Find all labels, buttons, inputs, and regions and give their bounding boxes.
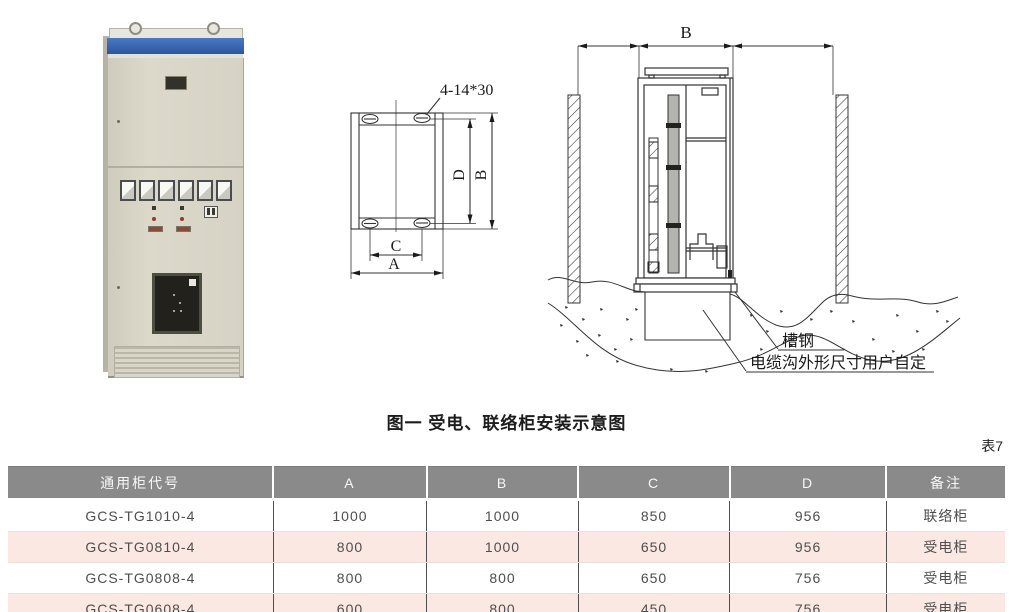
indicator-dot [180, 206, 184, 210]
meter-display-panel [152, 273, 202, 334]
lifting-eyebolt-icon [207, 22, 220, 35]
base-channel [634, 278, 737, 292]
table-row: GCS-TG1010-4 1000 1000 850 956 联络柜 [8, 500, 1005, 532]
panel-dot [180, 310, 182, 312]
channel-steel-label: 槽钢 [782, 332, 814, 350]
table-row: GCS-TG0810-4 800 1000 650 956 受电柜 [8, 532, 1005, 563]
cell-a: 800 [273, 563, 427, 594]
cable-trench [645, 292, 730, 340]
cabinet-body [108, 58, 244, 378]
panel-dot [179, 302, 181, 304]
cell-d: 956 [730, 532, 887, 563]
indicator-lamp [180, 217, 184, 221]
left-wall [568, 95, 580, 303]
dim-label-b-install: B [680, 23, 691, 42]
meter-window [178, 180, 194, 201]
screw-icon [117, 120, 120, 123]
dim-label-b: B [473, 170, 490, 181]
cell-d: 756 [730, 563, 887, 594]
meter-window [139, 180, 155, 201]
cell-b: 800 [427, 563, 579, 594]
selector-switch [204, 206, 218, 218]
panel-dot [173, 294, 175, 296]
cell-code: GCS-TG0608-4 [8, 594, 273, 612]
table-header-row: 通用柜代号 A B C D 备注 [8, 467, 1005, 500]
col-header-a: A [273, 467, 427, 500]
cell-remark: 受电柜 [886, 563, 1005, 594]
meter-window [158, 180, 174, 201]
cell-d: 756 [730, 594, 887, 612]
cell-code: GCS-TG1010-4 [8, 500, 273, 532]
meter-window [197, 180, 213, 201]
cell-a: 800 [273, 532, 427, 563]
cell-remark: 受电柜 [886, 594, 1005, 612]
cell-c: 650 [578, 563, 730, 594]
dim-label-a: A [388, 256, 400, 273]
installation-diagram: B [540, 18, 970, 393]
screw-icon [117, 286, 120, 289]
mounting-plan-drawing: 4-14*30 D B C A [330, 80, 510, 292]
indicator-dot [152, 206, 156, 210]
indicator-label-bar [148, 226, 163, 232]
meter-window [216, 180, 232, 201]
cell-code: GCS-TG0810-4 [8, 532, 273, 563]
cell-remark: 受电柜 [886, 532, 1005, 563]
indicator-cluster [142, 206, 168, 232]
col-header-remark: 备注 [886, 467, 1005, 500]
cell-c: 850 [578, 500, 730, 532]
cell-c: 650 [578, 532, 730, 563]
table-row: GCS-TG0808-4 800 800 650 756 受电柜 [8, 563, 1005, 594]
ventilation-louvers [114, 346, 240, 378]
cell-c: 450 [578, 594, 730, 612]
cell-code: GCS-TG0808-4 [8, 563, 273, 594]
col-header-b: B [427, 467, 579, 500]
busbar-duct [668, 95, 679, 273]
cell-b: 800 [427, 594, 579, 612]
indicator-label-bar [176, 226, 191, 232]
indicator-lamp [152, 217, 156, 221]
col-header-d: D [730, 467, 887, 500]
cell-d: 956 [730, 500, 887, 532]
dim-label-c: C [391, 238, 402, 255]
meter-window-row [120, 180, 232, 198]
door-divider [108, 166, 243, 168]
cell-remark: 联络柜 [886, 500, 1005, 532]
col-header-c: C [578, 467, 730, 500]
cable-trench-label: 电缆沟外形尺寸用户自定 [750, 354, 926, 372]
figure-caption: 图一 受电、联络柜安装示意图 [0, 409, 1013, 434]
cell-b: 1000 [427, 500, 579, 532]
right-wall [836, 95, 848, 303]
table-row: GCS-TG0608-4 600 800 450 756 受电柜 [8, 594, 1005, 612]
cell-a: 600 [273, 594, 427, 612]
cell-a: 1000 [273, 500, 427, 532]
cabinet-photo [103, 22, 245, 380]
spec-table: 通用柜代号 A B C D 备注 GCS-TG1010-4 1000 1000 … [8, 466, 1005, 612]
nameplate [165, 76, 187, 90]
cabinet-blue-band [107, 38, 244, 54]
hole-spec-label: 4-14*30 [440, 82, 493, 99]
table-number-tag: 表7 [981, 436, 1003, 456]
display-chip [189, 279, 196, 286]
lifting-eyebolt-icon [129, 22, 142, 35]
catalog-page: 4-14*30 D B C A B [0, 0, 1013, 612]
left-busbar-column [648, 138, 659, 273]
dim-label-d: D [451, 169, 468, 181]
panel-dot [173, 310, 175, 312]
cell-b: 1000 [427, 532, 579, 563]
dimension-arrowheads [351, 113, 495, 276]
meter-window [120, 180, 136, 201]
col-header-code: 通用柜代号 [8, 467, 273, 500]
indicator-cluster [170, 206, 196, 232]
